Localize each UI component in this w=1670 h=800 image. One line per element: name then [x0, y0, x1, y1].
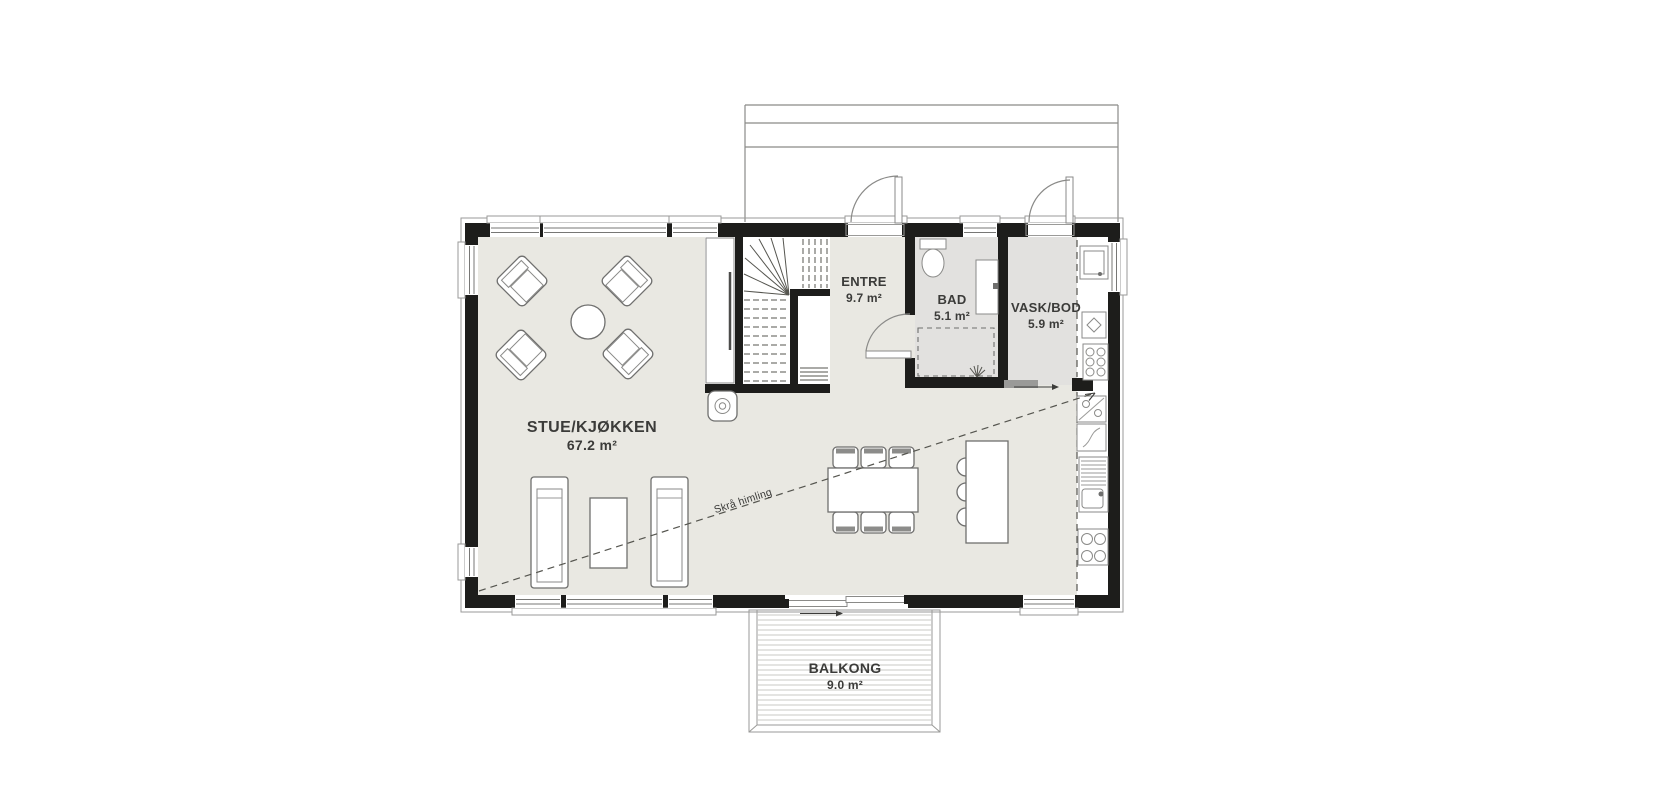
room-area-bad: 5.1 m²: [934, 309, 970, 323]
wall-bad-bottom: [905, 377, 1008, 388]
room-area-vask: 5.9 m²: [1028, 317, 1064, 331]
laundry-sink-icon: [1082, 312, 1106, 338]
appliance-circles-icon: [1083, 344, 1108, 380]
room-label-balkong: BALKONG: [809, 660, 882, 676]
window: [668, 595, 713, 608]
floor-plan: BALKONG 9.0 m²: [0, 0, 1670, 800]
hob-symbol-icon: [1077, 424, 1106, 451]
dining-chair: [889, 512, 914, 533]
dining-group: [828, 447, 918, 533]
stove-burners-icon: [1078, 529, 1108, 565]
kitchen-sink-icon: [1079, 457, 1108, 512]
window-bad: [963, 223, 997, 237]
window: [566, 595, 663, 608]
wall-stair-closet: [735, 237, 743, 385]
window: [515, 595, 561, 608]
room-area-balkong: 9.0 m²: [827, 678, 863, 692]
washing-machine-icon: [1080, 246, 1108, 279]
coffee-table: [590, 498, 627, 568]
door-leaf: [1066, 177, 1073, 223]
wall-entre-bad: [905, 237, 915, 385]
window: [1023, 595, 1075, 608]
toilet-icon: [920, 239, 946, 277]
dining-table: [828, 468, 918, 512]
wood-stove-icon: [708, 391, 737, 421]
window: [490, 223, 540, 237]
room-label-bad: BAD: [937, 292, 966, 307]
window: [672, 223, 718, 237]
dining-chair: [861, 512, 886, 533]
window: [465, 547, 478, 577]
round-table: [571, 305, 605, 339]
bathroom-cabinet: [976, 260, 998, 314]
dining-chair: [833, 512, 858, 533]
window: [465, 245, 478, 295]
window: [1108, 242, 1120, 292]
room-label-stue: STUE/KJØKKEN: [527, 419, 657, 436]
kitchen-island: [966, 441, 1008, 543]
prep-sink-icon: [1077, 396, 1106, 422]
window-right: [1108, 239, 1127, 295]
dining-chair: [861, 447, 886, 468]
dining-chair: [833, 447, 858, 468]
door-leaf: [866, 351, 911, 358]
door-leaf: [895, 177, 902, 223]
room-label-entre: ENTRE: [841, 274, 887, 289]
window: [543, 223, 667, 237]
room-label-vask: VASK/BOD: [1011, 300, 1081, 315]
room-area-stue: 67.2 m²: [567, 437, 617, 453]
room-area-entre: 9.7 m²: [846, 291, 882, 305]
wall-bad-vask: [998, 237, 1008, 385]
